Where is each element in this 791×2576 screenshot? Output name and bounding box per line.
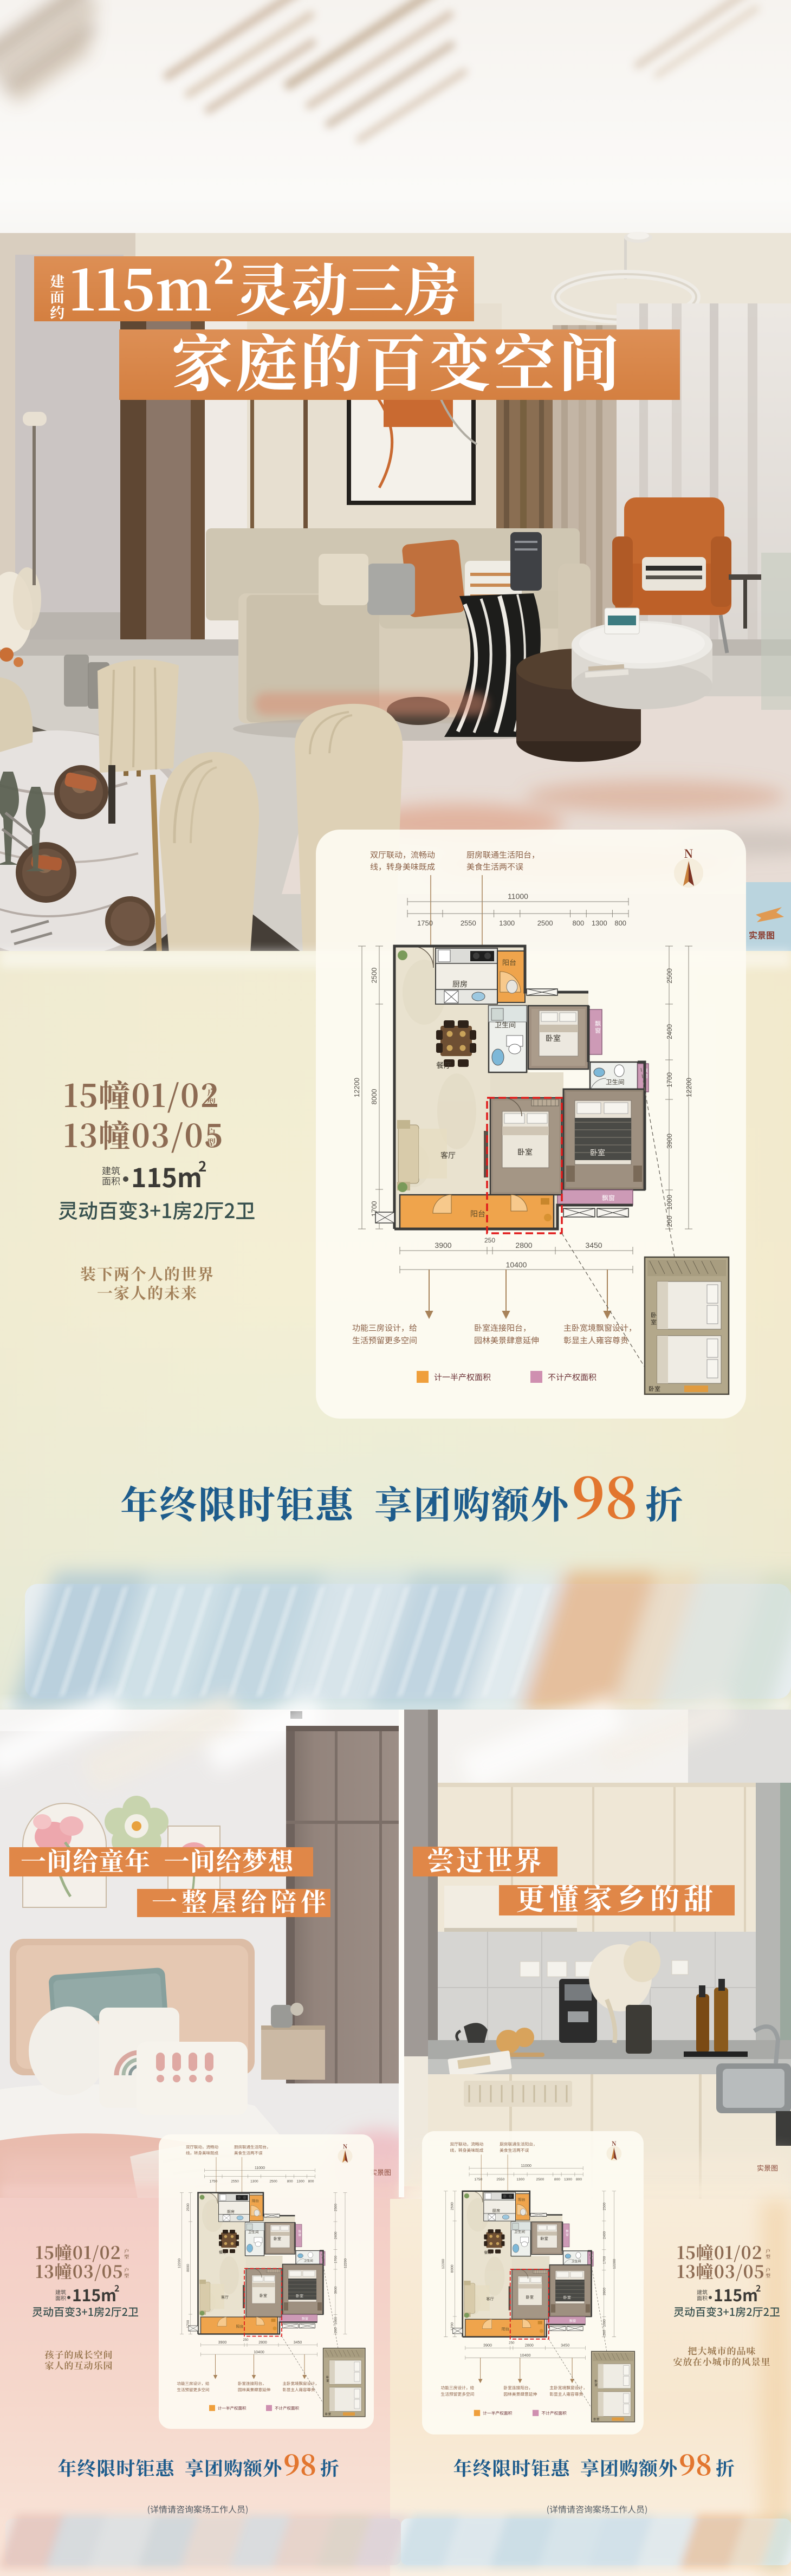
svg-text:800: 800 [572,919,584,927]
svg-text:8000: 8000 [370,1089,378,1105]
svg-text:11000: 11000 [508,892,528,901]
svg-text:2400: 2400 [666,1024,673,1039]
svg-text:2800: 2800 [515,1241,532,1250]
svg-text:1300: 1300 [499,919,515,927]
svg-text:200: 200 [666,1216,673,1227]
svg-text:2500: 2500 [370,968,378,983]
svg-text:2500: 2500 [666,968,673,983]
svg-text:2550: 2550 [461,919,476,927]
svg-text:1000: 1000 [666,1195,673,1210]
svg-text:3450: 3450 [585,1241,602,1250]
svg-text:12200: 12200 [685,1078,693,1097]
svg-text:12200: 12200 [353,1078,361,1097]
svg-text:1300: 1300 [592,919,607,927]
svg-text:1750: 1750 [417,919,433,927]
svg-text:800: 800 [614,919,626,927]
svg-text:2500: 2500 [537,919,553,927]
svg-text:1700: 1700 [666,1072,673,1088]
svg-text:250: 250 [484,1237,495,1244]
svg-text:3900: 3900 [666,1134,673,1149]
svg-text:3900: 3900 [435,1241,451,1250]
svg-text:10400: 10400 [506,1260,527,1269]
